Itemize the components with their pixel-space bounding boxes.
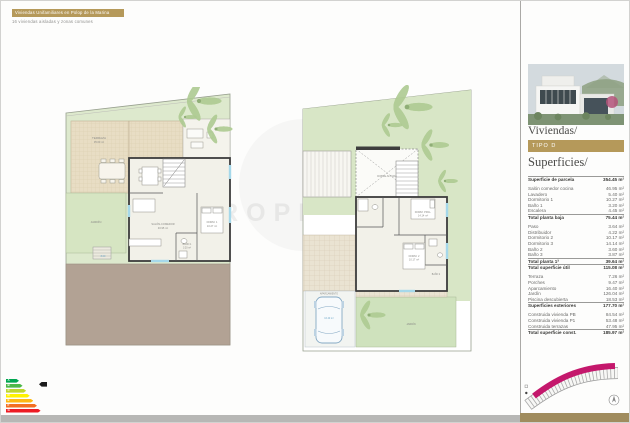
energy-label: ABCDEFG (6, 379, 41, 414)
surface-label: Superficie de parcela (528, 177, 574, 183)
stairs (163, 159, 185, 187)
svg-text:10.17 m²: 10.17 m² (409, 258, 419, 262)
svg-text:JARDÍN: JARDÍN (406, 322, 415, 326)
energy-letter: B (8, 384, 10, 388)
surface-value: 47.95 m² (606, 324, 624, 330)
plan-sheet-page: Viviendas Unifamiliares en Polop de la M… (0, 0, 630, 423)
bottom-strip (1, 415, 520, 422)
legend-dot-icon (525, 392, 527, 394)
surface-value: 185.97 m² (603, 330, 624, 336)
surface-label: Piscina descubierta (528, 297, 568, 303)
tipo-badge: TIPO D (528, 140, 624, 152)
svg-text:35.60 m²: 35.60 m² (94, 140, 104, 144)
surface-row: Total planta 1ª39.64 m² (528, 258, 624, 265)
surface-label: Total superficie útil (528, 265, 570, 271)
outdoor-dining-set (99, 159, 125, 183)
surface-row: Superficies exteriores177.70 m² (528, 302, 624, 309)
surface-value: 75.44 m² (606, 215, 624, 221)
surface-value: 3.87 m² (608, 252, 624, 258)
surface-label: Total planta baja (528, 215, 564, 221)
surface-row: Total superficie útil115.08 m² (528, 264, 624, 271)
energy-bar-g: G (6, 409, 41, 413)
rear-garden (356, 297, 456, 347)
sidebar-section-viviendas: Viviendas/ (528, 125, 577, 137)
svg-text:DORM. 2: DORM. 2 (409, 254, 420, 258)
svg-text:DORM. 1: DORM. 1 (207, 220, 218, 224)
stairs (396, 161, 418, 197)
garden-strip (447, 215, 471, 301)
energy-letter: D (8, 394, 10, 398)
site-plan-diagram (522, 349, 626, 411)
energy-letter: F (8, 404, 10, 408)
sidebar-divider (520, 1, 521, 423)
energy-bar-f: F (6, 404, 37, 408)
svg-text:3.20 m²: 3.20 m² (183, 247, 191, 250)
surface-row: Total superficie const.185.97 m² (528, 329, 624, 336)
svg-text:TERRAZA: TERRAZA (92, 136, 106, 140)
driveway-area (66, 264, 230, 345)
bottom-strip-gold (520, 413, 630, 422)
surface-value: 4.45 m² (608, 208, 624, 214)
surface-value: 115.08 m² (603, 265, 624, 271)
energy-letter: G (8, 409, 10, 413)
energy-bar-c: C (6, 389, 26, 393)
energy-bar-d: D (6, 394, 30, 398)
svg-text:46.95 m²: 46.95 m² (158, 226, 168, 230)
surface-label: Baño 3 (528, 252, 543, 258)
surface-value: 354.45 m² (603, 177, 624, 183)
svg-text:14.14 m²: 14.14 m² (418, 214, 428, 218)
energy-bar-a: A (6, 379, 19, 383)
energy-letter: E (8, 399, 10, 403)
villa-photo (528, 64, 624, 125)
surface-value: 177.70 m² (603, 303, 624, 309)
pergola-roof (303, 151, 351, 197)
energy-letter: C (8, 389, 10, 393)
svg-text:JARDÍN: JARDÍN (91, 220, 102, 224)
surface-value: 39.64 m² (606, 259, 624, 265)
project-title-bar: Viviendas Unifamiliares en Polop de la M… (12, 9, 124, 17)
compass-icon (609, 395, 619, 405)
floor-plan-first: DOBLE ALTURA DORM. PPAL. 14.14 m² DORM. … (299, 85, 474, 355)
surface-value: 18.53 m² (606, 297, 624, 303)
surface-row: Total planta baja75.44 m² (528, 214, 624, 221)
energy-letter: A (8, 379, 10, 383)
svg-text:8.00: 8.00 (101, 255, 106, 258)
surface-label: Total planta 1ª (528, 259, 559, 265)
surface-label: Escalera (528, 208, 546, 214)
energy-bar-e: E (6, 399, 33, 403)
svg-text:16.40 m²: 16.40 m² (324, 317, 334, 320)
legend-square-icon (525, 385, 528, 388)
covered-porch (183, 119, 230, 158)
surfaces-table: Superficie de parcela354.45 m²Salón come… (528, 176, 624, 336)
surface-label: Superficies exteriores (528, 303, 576, 309)
svg-text:DORM. PPAL.: DORM. PPAL. (415, 210, 432, 214)
surface-label: Total superficie const. (528, 330, 576, 336)
floor-plan-ground: TERRAZA 35.60 m² JARDÍN SALÓN-COMEDOR 46… (63, 87, 233, 347)
svg-text:BAÑO 2: BAÑO 2 (432, 273, 441, 276)
surface-label: Construida terrazas (528, 324, 568, 330)
sidebar-section-superficies: Superficies/ (528, 155, 588, 170)
energy-bar-b: B (6, 384, 23, 388)
svg-text:APARCAMIENTO: APARCAMIENTO (320, 293, 338, 296)
surface-row: Superficie de parcela354.45 m² (528, 176, 624, 183)
svg-text:10.27 m²: 10.27 m² (207, 224, 217, 228)
project-subtitle: 16 viviendas aisladas y zonas comunes (12, 19, 93, 24)
svg-text:DOBLE ALTURA: DOBLE ALTURA (377, 174, 397, 178)
